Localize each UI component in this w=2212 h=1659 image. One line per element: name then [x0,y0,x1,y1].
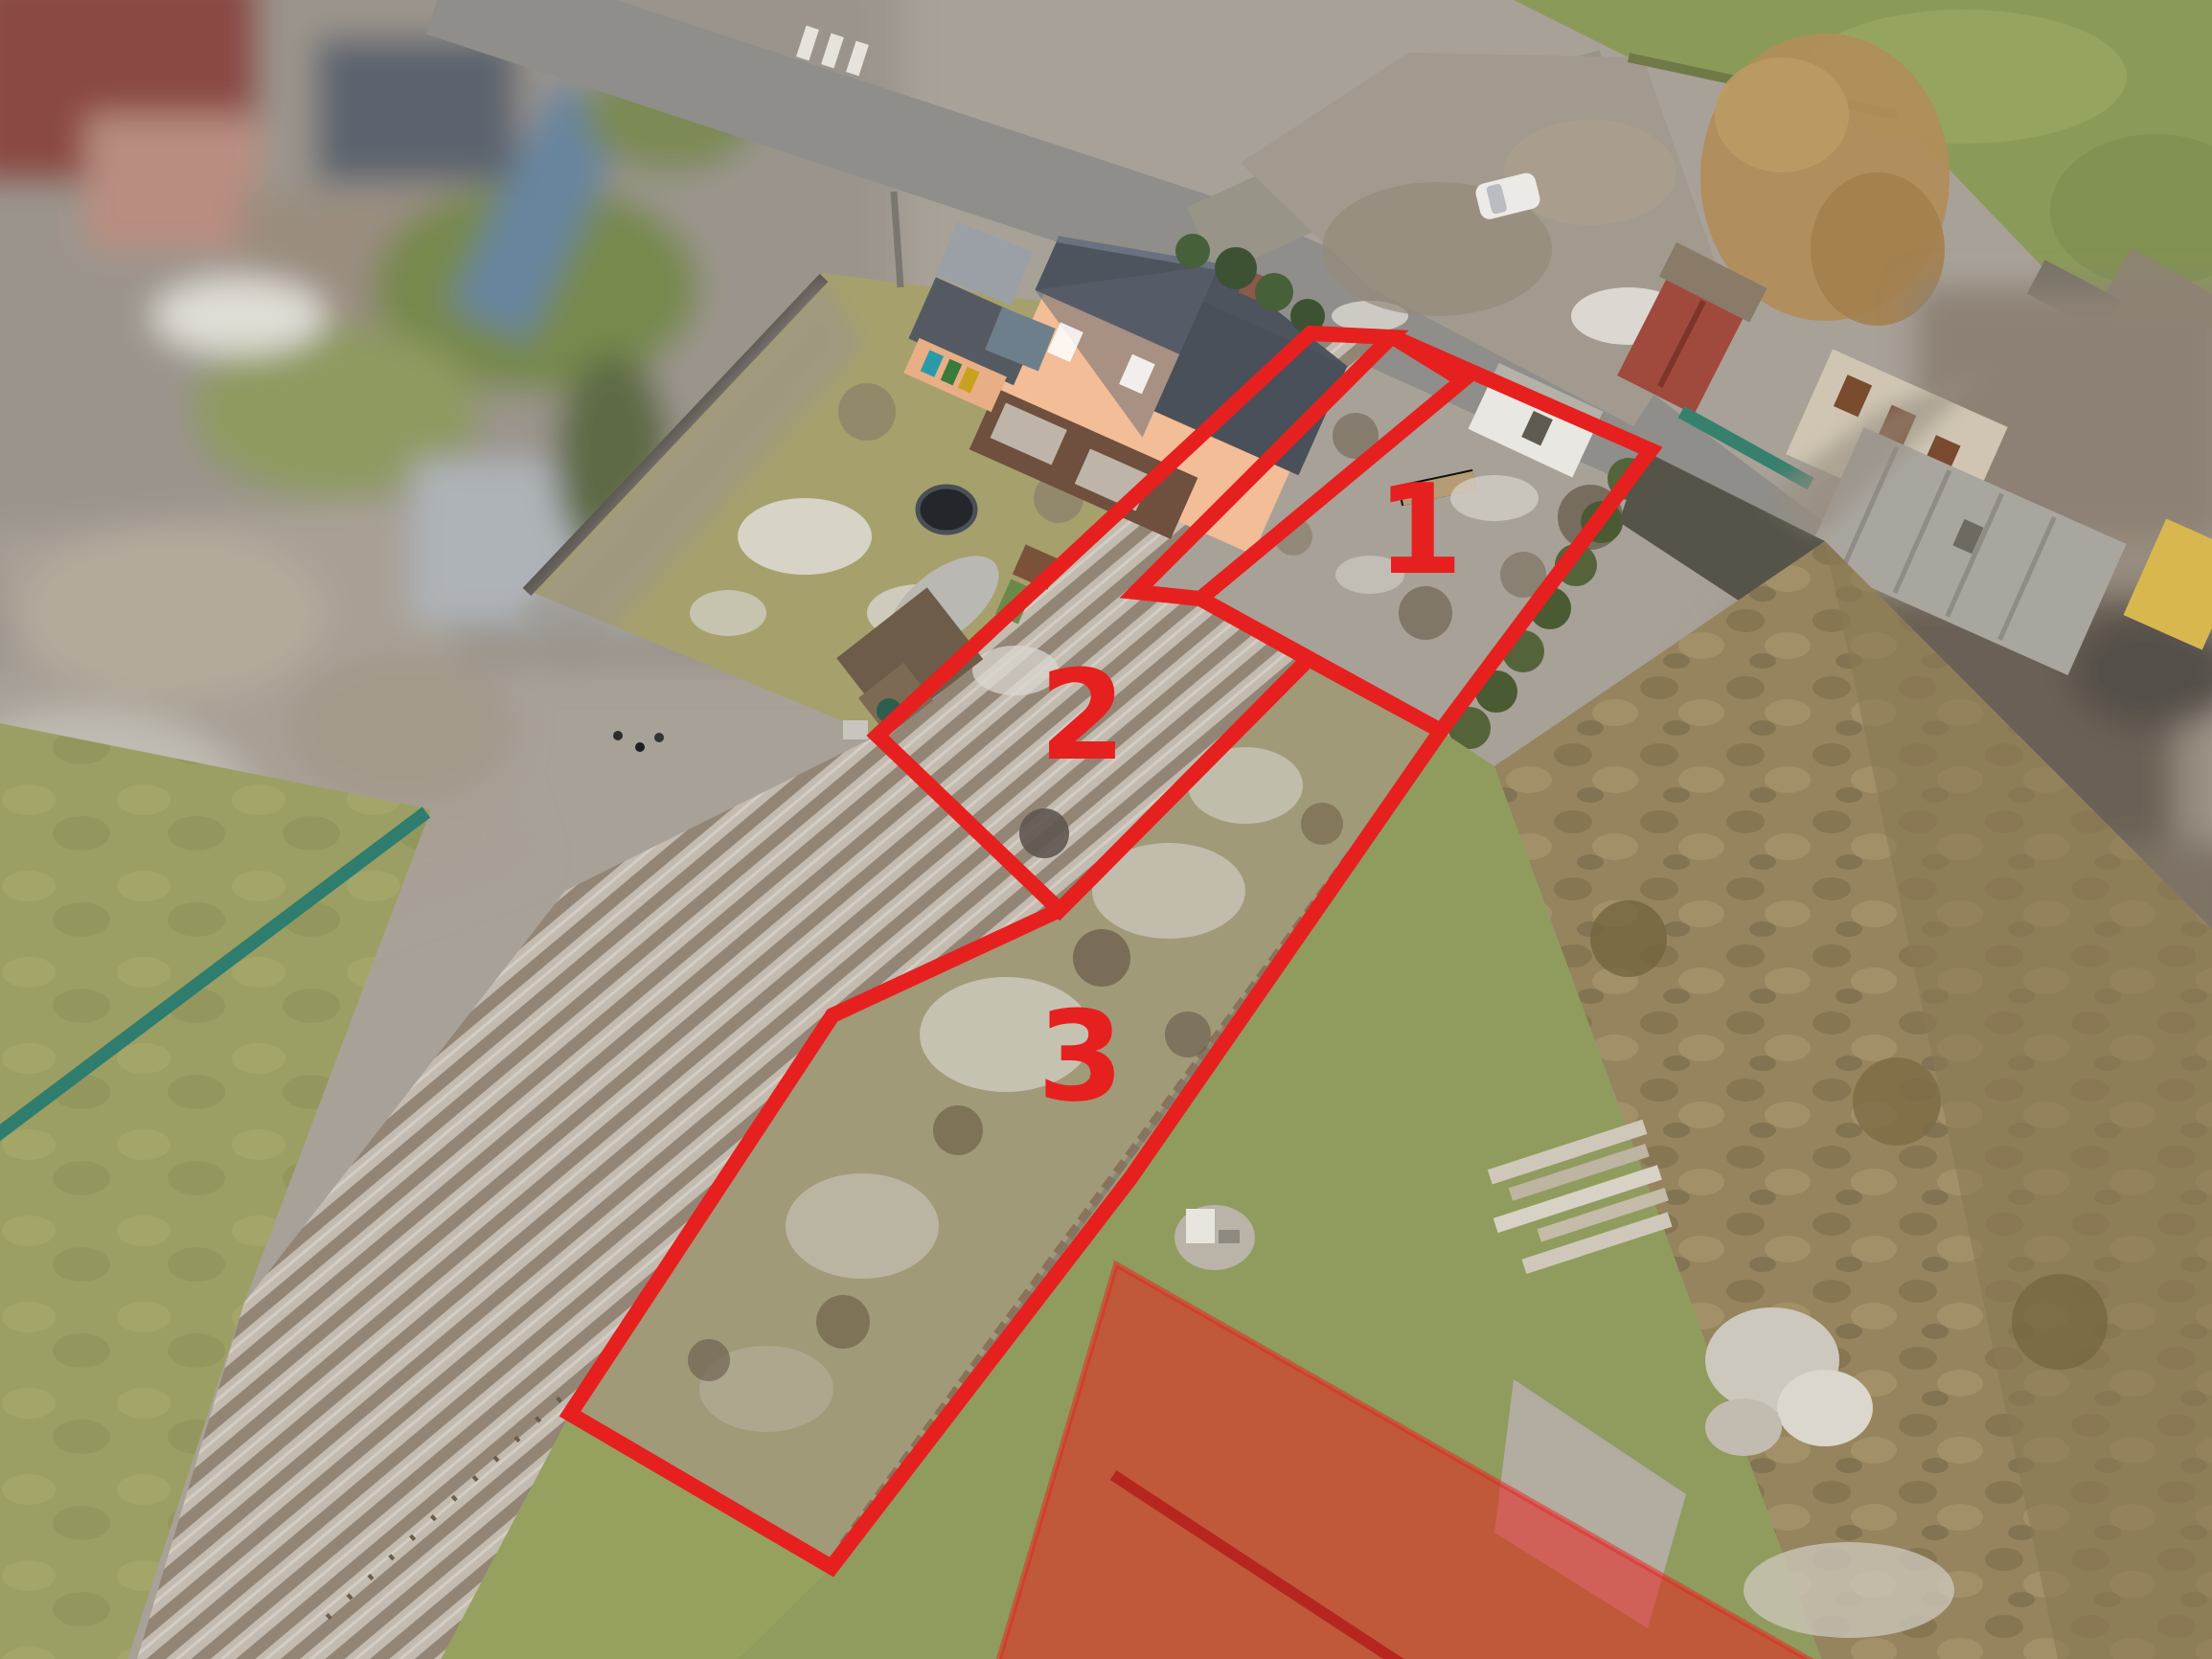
bush [1853,1057,1941,1146]
bush [1590,900,1667,977]
trampoline [918,487,975,533]
tall-tree [1019,808,1069,858]
chicken [613,731,623,740]
bush [2012,1274,2108,1370]
gravel-snow [1744,1542,1954,1638]
bare-tree [1165,1011,1211,1057]
parcel-3-label: 3 [1038,984,1124,1129]
aerial-photo: 1 2 3 [0,0,2212,1659]
bare-tree [1301,803,1343,845]
round-well [1174,1205,1255,1270]
bare-tree [933,1105,983,1155]
chicken [635,742,645,752]
aerial-photo-canvas: 1 2 3 [0,0,2212,1659]
bare-tree [688,1339,730,1381]
snow-patch [1450,475,1539,521]
bare-tree [838,383,896,441]
parcel-2-label: 2 [1039,643,1126,788]
parcel-1-label: 1 [1377,457,1463,602]
bare-tree [1073,929,1130,987]
bare-tree [816,1295,870,1349]
chicken [654,733,664,742]
snow-patch [738,498,872,575]
